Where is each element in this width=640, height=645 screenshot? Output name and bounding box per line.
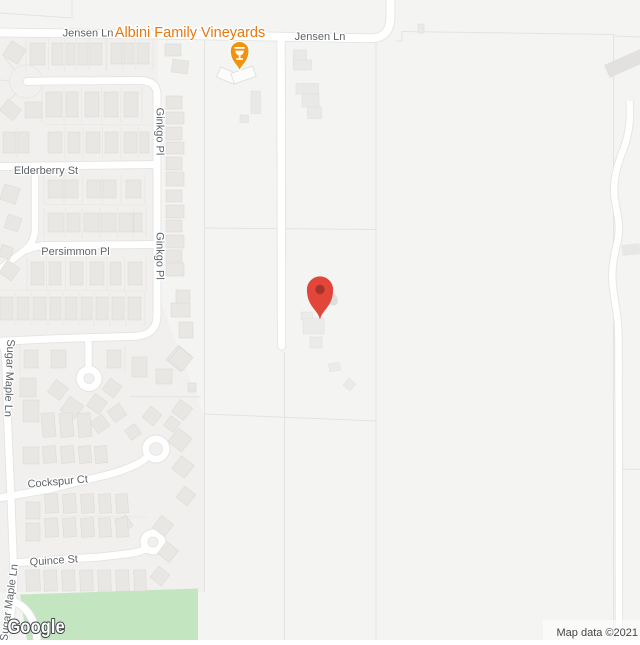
svg-text:Persimmon Pl: Persimmon Pl xyxy=(41,246,109,258)
svg-text:Map data ©2021: Map data ©2021 xyxy=(557,627,639,639)
svg-text:Ginkgo Pl: Ginkgo Pl xyxy=(154,232,166,280)
svg-text:Albini Family Vineyards: Albini Family Vineyards xyxy=(115,25,265,41)
svg-text:Jensen Ln: Jensen Ln xyxy=(63,28,114,40)
svg-text:Jensen Ln: Jensen Ln xyxy=(295,31,346,43)
svg-text:Ginkgo Pl: Ginkgo Pl xyxy=(154,108,166,156)
svg-text:Elderberry St: Elderberry St xyxy=(14,165,78,177)
svg-text:Google: Google xyxy=(8,616,65,638)
